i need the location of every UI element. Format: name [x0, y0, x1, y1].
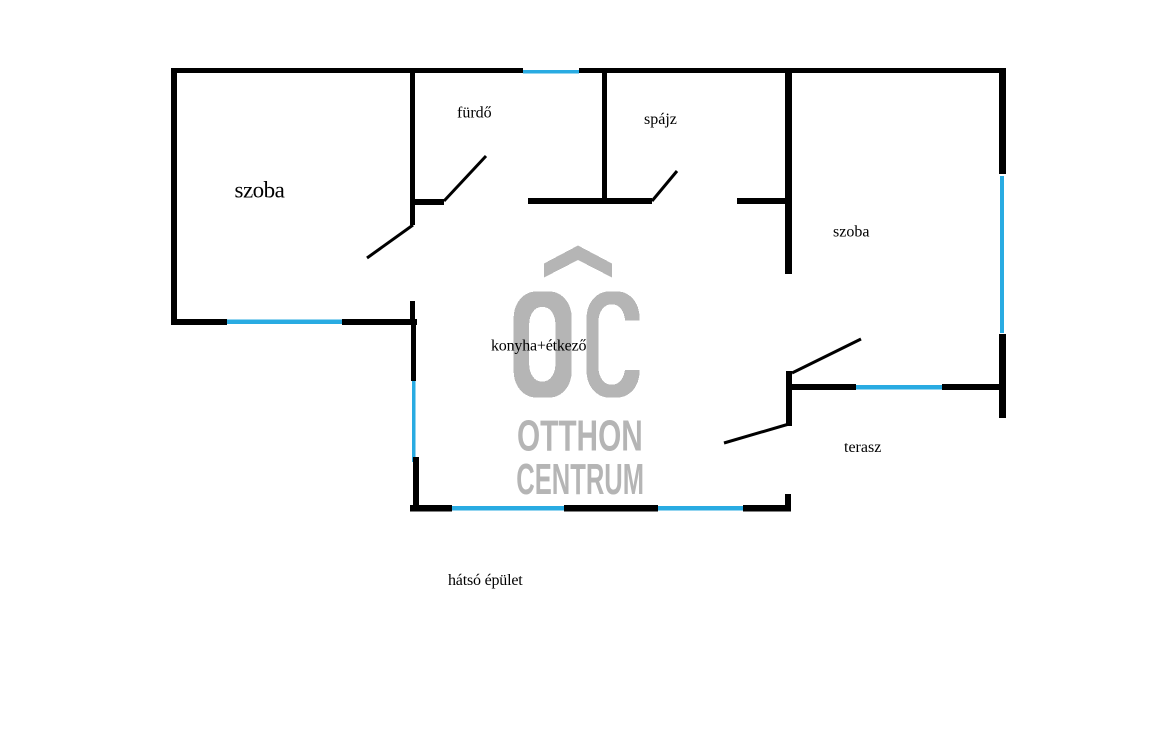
svg-text:spájz: spájz	[644, 111, 677, 128]
svg-text:hátsó épület: hátsó épület	[448, 572, 523, 589]
svg-text:terasz: terasz	[844, 439, 881, 456]
svg-text:konyha+étkező: konyha+étkező	[491, 338, 586, 355]
svg-text:fürdő: fürdő	[457, 105, 492, 122]
svg-text:CENTRUM: CENTRUM	[516, 454, 644, 503]
svg-text:szoba: szoba	[235, 178, 285, 203]
svg-text:szoba: szoba	[833, 224, 869, 241]
